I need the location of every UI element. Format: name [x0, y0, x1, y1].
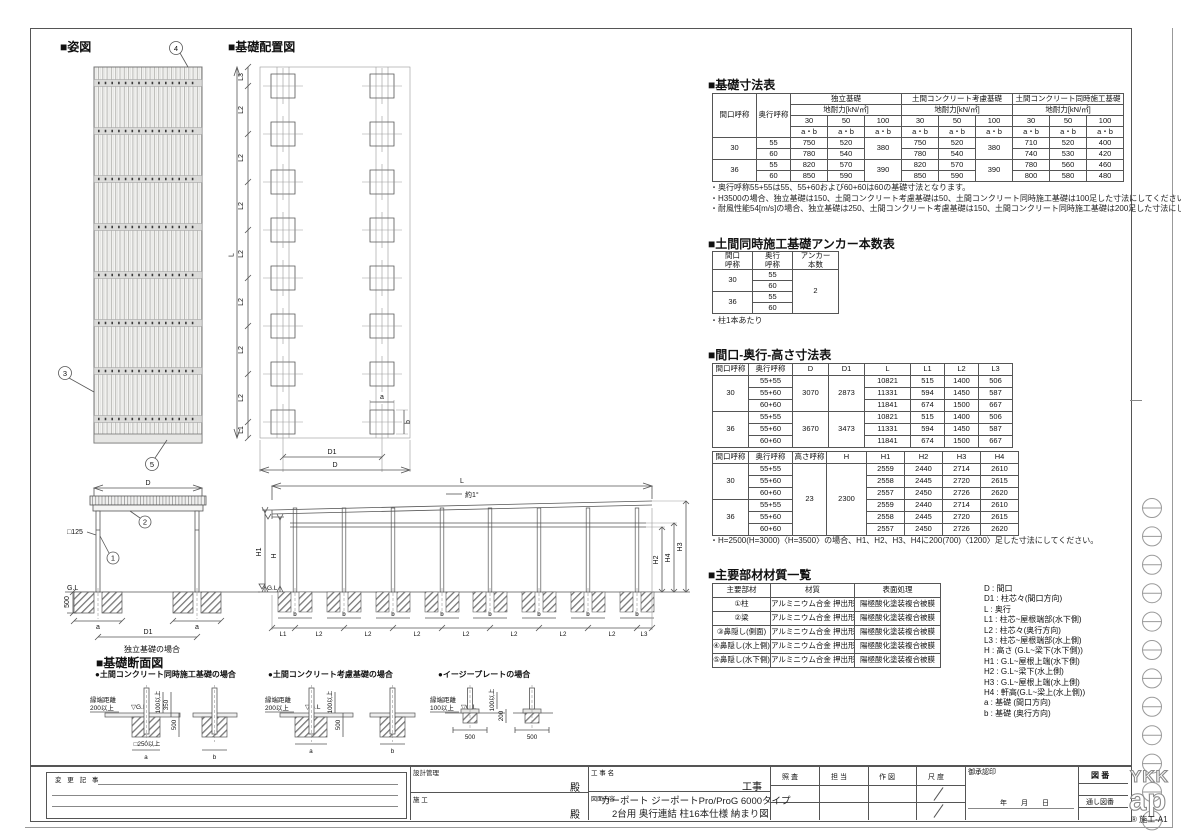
table-cell: 540 — [828, 149, 865, 160]
legend-line: H1 : G.L~屋根上端(水下側) — [984, 657, 1085, 667]
table-cell: 580 — [1050, 171, 1087, 182]
table-cell: 2557 — [867, 488, 905, 500]
header-dims-table: ■間口-奥行-高さ寸法表 — [708, 346, 831, 363]
section3-title: ●イージープレートの場合 — [438, 669, 530, 680]
legend-line: D : 間口 — [984, 584, 1085, 594]
table-cell: 2714 — [943, 500, 981, 512]
table-cell: 60 — [757, 171, 791, 182]
col-sakuzu: 作 図 — [879, 772, 895, 782]
table-cell: 23 — [793, 464, 827, 536]
label-post-size: □125 — [67, 529, 96, 536]
beam — [93, 505, 203, 511]
bottom-chain: L1 L2 L2 L2 L2 L2 L2 L2 L3 — [269, 508, 655, 638]
roof-panel — [94, 67, 202, 443]
table-cell: 2450 — [905, 524, 943, 536]
table-cell: 30 — [713, 376, 749, 412]
height-dims: H H1 H2 H4 H3 — [256, 501, 689, 592]
svg-text:H3: H3 — [677, 542, 684, 551]
table-cell: 515 — [911, 376, 945, 388]
svg-text:1: 1 — [111, 554, 115, 563]
svg-text:縁端距離: 縁端距離 — [430, 695, 457, 704]
tb-h-cols1 — [770, 785, 965, 786]
table-cell: 850 — [902, 171, 939, 182]
table-cell: 850 — [791, 171, 828, 182]
table-cell: 390 — [976, 160, 1013, 182]
table-cell: 60 — [757, 149, 791, 160]
tb-h-zuban3 — [1078, 807, 1128, 808]
table-cell: 2559 — [867, 464, 905, 476]
table-cell: 材質 — [771, 584, 855, 598]
change-record-label: 変 更 記 事 — [55, 774, 100, 784]
tb-h-cols2 — [770, 802, 965, 803]
table-cell: 陽極酸化塗装複合被膜 — [855, 654, 941, 668]
svg-text:a: a — [380, 394, 384, 401]
table-cell: 750 — [902, 138, 939, 149]
table-cell: 587 — [979, 388, 1013, 400]
table-cell: 陽極酸化塗装複合被膜 — [855, 612, 941, 626]
post-rails — [277, 67, 388, 438]
table-cell: 60+60 — [749, 400, 793, 412]
table-cell: H3 — [943, 452, 981, 464]
legend-line: a : 基礎 (間口方向) — [984, 698, 1085, 708]
table-cell: 380 — [865, 138, 902, 160]
table-cell: 780 — [791, 149, 828, 160]
table-cell: 2615 — [981, 512, 1019, 524]
table-cell: 100 — [865, 116, 902, 127]
front-elevation-drawing: D 2 1 □125 G.L 500 — [60, 478, 265, 668]
table-cell: 820 — [791, 160, 828, 171]
side-elevation-drawing: L 約1° G.L b b b b — [250, 470, 700, 665]
table-cell: L1 — [911, 364, 945, 376]
table-cell: 30 — [713, 138, 757, 160]
table-cell: 2620 — [981, 488, 1019, 500]
table-cell: 主要部材 — [713, 584, 771, 598]
table-cell: D1 — [829, 364, 865, 376]
footing-centerlines — [263, 68, 402, 440]
svg-text:H: H — [271, 553, 278, 558]
slope-label: 約1° — [446, 490, 479, 499]
foundation-dims-notes: ・奥行呼称55+55は55、55+60および60+60は60の基礎寸法となります… — [710, 183, 1181, 215]
table-cell: 奥行呼称 — [749, 452, 793, 464]
foundation-sections-drawing: 縁端距離 200以上 ▽G.L 100以上 350 500 □250以上 a b — [85, 680, 585, 765]
table-cell: 奥行呼称 — [749, 364, 793, 376]
table-cell: a・b — [865, 127, 902, 138]
table-cell: 820 — [902, 160, 939, 171]
drawing-title-line1: カーポート ジーポートPro/ProG 6000タイプ — [601, 793, 791, 807]
table-cell: 11841 — [865, 436, 911, 448]
legend-line: L3 : 柱芯~屋根端部(水上側) — [984, 636, 1085, 646]
table-cell: 60+60 — [749, 524, 793, 536]
table-cell: 間口呼称 — [713, 364, 749, 376]
table-cell: 800 — [1013, 171, 1050, 182]
svg-text:L2: L2 — [463, 631, 470, 638]
table-cell: 11331 — [865, 424, 911, 436]
table-cell: 400 — [1087, 138, 1124, 149]
ykk-logo-bottom: ap — [1129, 784, 1167, 815]
tb-h-zuban1 — [1078, 783, 1128, 784]
table-cell: 2726 — [943, 524, 981, 536]
svg-text:L2: L2 — [238, 394, 245, 402]
table-cell: 2615 — [981, 476, 1019, 488]
section2-title: ●土間コンクリート考慮基礎の場合 — [268, 669, 393, 680]
svg-text:L2: L2 — [238, 154, 245, 162]
design-label: 設計管理 — [413, 767, 439, 777]
table-cell: 11331 — [865, 388, 911, 400]
table-cell: a・b — [1013, 127, 1050, 138]
table-cell: 間口呼称 — [713, 94, 757, 138]
table-cell: 高さ呼称 — [793, 452, 827, 464]
appearance-drawing: 4 3 5 — [55, 40, 225, 475]
dim-L: L — [272, 478, 652, 500]
table-cell: 10821 — [865, 412, 911, 424]
table-cell: 55+55 — [749, 376, 793, 388]
dim-D: D — [94, 480, 202, 496]
table-cell: 陽極酸化塗装複合被膜 — [855, 626, 941, 640]
section1-title: ●土間コンクリート同時施工基礎の場合 — [95, 669, 236, 680]
svg-text:500: 500 — [527, 734, 538, 741]
svg-text:H2: H2 — [653, 555, 660, 564]
table-cell: 674 — [911, 400, 945, 412]
construction-label: 施 工 — [413, 794, 428, 804]
svg-text:H4: H4 — [665, 553, 672, 562]
foundation-layout-drawing: L3 L2 L2 L2 L2 L2 L2 L2 L1 L D1 D a — [230, 55, 435, 480]
table-cell: 奥行呼称 — [757, 94, 791, 138]
table-cell: 560 — [1050, 160, 1087, 171]
independent-footings — [74, 588, 221, 619]
table-cell: L2 — [945, 364, 979, 376]
table-cell: 100 — [976, 116, 1013, 127]
table-cell: 515 — [911, 412, 945, 424]
svg-text:500: 500 — [335, 719, 342, 730]
tb-div-6 — [916, 765, 917, 820]
table-cell: 11841 — [865, 400, 911, 412]
table-cell: 55+55 — [749, 500, 793, 512]
table-cell: a・b — [976, 127, 1013, 138]
table-cell: アルミニウム合金 押出形材 — [771, 598, 855, 612]
header-foundation-layout: ■基礎配置図 — [228, 38, 295, 55]
svg-text:L2: L2 — [238, 106, 245, 114]
posts — [293, 508, 639, 592]
callout-3: 3 — [59, 367, 95, 393]
svg-text:□250以上: □250以上 — [134, 740, 160, 748]
svg-text:4: 4 — [174, 44, 178, 53]
table-cell: 10821 — [865, 376, 911, 388]
table-cell: 36 — [713, 160, 757, 182]
table-cell: 55+60 — [749, 388, 793, 400]
svg-text:100以上: 100以上 — [488, 689, 496, 712]
svg-text:縁端距離: 縁端距離 — [90, 695, 117, 704]
table-cell: a・b — [1087, 127, 1124, 138]
svg-text:200以上: 200以上 — [265, 703, 289, 712]
table-cell: 60+60 — [749, 488, 793, 500]
svg-text:H1: H1 — [256, 547, 263, 556]
footings — [278, 588, 654, 618]
table-cell: ①柱 — [713, 598, 771, 612]
table-cell: 520 — [1050, 138, 1087, 149]
svg-text:D1: D1 — [328, 449, 337, 456]
table-cell: ②梁 — [713, 612, 771, 626]
table-cell: 地耐力[kN/㎡] — [791, 105, 902, 116]
table-cell: 2726 — [943, 488, 981, 500]
table-cell: 420 — [1087, 149, 1124, 160]
table-cell: 60+60 — [749, 436, 793, 448]
table-cell: 570 — [828, 160, 865, 171]
tb-div-8 — [1078, 765, 1079, 820]
svg-text:L: L — [229, 253, 236, 257]
dims-a-D1: a a D1 — [71, 618, 224, 640]
table-cell: a・b — [939, 127, 976, 138]
gl-mark: G.L — [259, 584, 278, 592]
col-shakudo: 尺 度 — [928, 772, 944, 782]
header-foundation-dims: ■基礎寸法表 — [708, 76, 775, 93]
svg-text:500: 500 — [64, 596, 71, 608]
table-cell: アルミニウム合金 押出形材 — [771, 654, 855, 668]
dims-table-b: 間口呼称奥行呼称高さ呼称HH1H2H3H43055+55232300255924… — [712, 451, 1019, 536]
table-cell: アルミニウム合金 押出形材 — [771, 626, 855, 640]
table-cell: 間口 呼称 — [713, 252, 753, 270]
table-cell: H4 — [981, 452, 1019, 464]
dimension-legend: D : 間口D1 : 柱芯々(間口方向)L : 奥行L1 : 柱芯~屋根端部(水… — [984, 584, 1085, 719]
table-cell: 55+55 — [749, 464, 793, 476]
svg-text:D: D — [332, 462, 337, 469]
svg-text:b: b — [537, 611, 541, 618]
tooshi-zuban-label: 通し図番 — [1086, 797, 1114, 807]
table-cell: 30 — [791, 116, 828, 127]
table-cell: 55+60 — [749, 424, 793, 436]
svg-text:100以上: 100以上 — [326, 691, 334, 714]
table-cell: ③鼻隠し(側面) — [713, 626, 771, 640]
svg-text:L2: L2 — [238, 298, 245, 306]
table-cell: 780 — [902, 149, 939, 160]
table-cell: 506 — [979, 376, 1013, 388]
table-cell: 1500 — [945, 400, 979, 412]
sheet-bottom-edge — [25, 827, 1173, 828]
table-cell: 2720 — [943, 512, 981, 524]
table-cell: 506 — [979, 412, 1013, 424]
svg-text:b: b — [293, 611, 297, 618]
svg-text:L3: L3 — [641, 631, 648, 638]
table-cell: 2 — [793, 270, 839, 314]
svg-text:L2: L2 — [414, 631, 421, 638]
table-cell: 2300 — [827, 464, 867, 536]
svg-text:100以上: 100以上 — [154, 691, 162, 714]
table-cell: a・b — [791, 127, 828, 138]
table-cell: 380 — [976, 138, 1013, 160]
svg-text:L2: L2 — [316, 631, 323, 638]
table-cell: 390 — [865, 160, 902, 182]
tb-div-4 — [819, 765, 820, 820]
svg-text:L2: L2 — [609, 631, 616, 638]
table-cell: 2445 — [905, 476, 943, 488]
svg-text:b: b — [440, 611, 444, 618]
svg-text:D: D — [145, 480, 150, 487]
legend-line: L : 奥行 — [984, 605, 1085, 615]
construction-dono: 殿 — [570, 806, 580, 821]
table-cell: 55 — [753, 270, 793, 281]
approval-underline — [968, 808, 1074, 809]
change-line-3 — [52, 806, 398, 807]
table-cell: 土間コンクリート同時施工基礎 — [1013, 94, 1124, 105]
svg-text:L: L — [460, 478, 464, 485]
svg-text:b: b — [342, 611, 346, 618]
table-cell: 2557 — [867, 524, 905, 536]
svg-text:a: a — [309, 748, 313, 755]
table-cell: 2610 — [981, 500, 1019, 512]
table-cell: 60 — [753, 303, 793, 314]
table-cell: 土間コンクリート考慮基礎 — [902, 94, 1013, 105]
legend-line: H3 : G.L~屋根上端(水上側) — [984, 678, 1085, 688]
left-dim-chain: L3 L2 L2 L2 L2 L2 L2 L2 L1 L — [229, 64, 252, 441]
svg-text:b: b — [488, 611, 492, 618]
table-cell: 30 — [902, 116, 939, 127]
svg-text:350: 350 — [163, 699, 170, 710]
callout-4: 4 — [170, 42, 189, 68]
table-cell: ⑤鼻隠し(水下側) — [713, 654, 771, 668]
drawing-sheet: ■姿図 ■基礎配置図 ■基礎寸法表 ■土間同時施工基礎アンカー本数表 ■間口-奥… — [0, 0, 1181, 835]
svg-text:2: 2 — [143, 518, 147, 527]
table-cell: 3670 — [793, 412, 829, 448]
approval-date: 年 月 日 — [1000, 798, 1049, 808]
table-cell: 陽極酸化塗装複合被膜 — [855, 598, 941, 612]
svg-text:b: b — [213, 754, 217, 761]
svg-text:b: b — [391, 611, 395, 618]
svg-text:500: 500 — [465, 734, 476, 741]
svg-text:a: a — [195, 624, 199, 631]
table-cell: 55 — [753, 292, 793, 303]
table-cell: 2720 — [943, 476, 981, 488]
table-cell: 陽極酸化塗装複合被膜 — [855, 640, 941, 654]
table-cell: 36 — [713, 500, 749, 536]
table-cell: 表面処理 — [855, 584, 941, 598]
legend-line: L1 : 柱芯~屋根端部(水下側) — [984, 615, 1085, 625]
dims-note: ・H=2500(H=3000)〈H=3500〉の場合、H1、H2、H3、H4に2… — [710, 536, 1098, 547]
foundation-dims-table: 間口呼称奥行呼称独立基礎土間コンクリート考慮基礎土間コンクリート同時施工基礎地耐… — [712, 93, 1124, 182]
svg-text:a: a — [96, 624, 100, 631]
table-cell: 2445 — [905, 512, 943, 524]
label-gl: G.L — [67, 585, 78, 592]
table-cell: 1450 — [945, 388, 979, 400]
table-cell: 1450 — [945, 424, 979, 436]
header-anchor-table: ■土間同時施工基礎アンカー本数表 — [708, 235, 895, 252]
svg-text:200: 200 — [498, 710, 505, 721]
table-cell: 1400 — [945, 412, 979, 424]
legend-line: b : 基礎 (奥行方向) — [984, 709, 1085, 719]
svg-text:b: b — [391, 748, 395, 755]
table-cell: 674 — [911, 436, 945, 448]
zuban-label: 図 番 — [1091, 770, 1109, 781]
table-cell: 2610 — [981, 464, 1019, 476]
sheet-code: ® 施工-A1 — [1131, 814, 1168, 825]
anchor-note: ・柱1本あたり — [710, 316, 762, 327]
table-cell: 570 — [939, 160, 976, 171]
project-name-label: 工 事 名 — [591, 767, 614, 777]
table-cell: L — [865, 364, 911, 376]
svg-text:L2: L2 — [365, 631, 372, 638]
table-cell: 2873 — [829, 376, 865, 412]
project-suffix: 工事 — [742, 778, 762, 793]
svg-text:L2: L2 — [238, 346, 245, 354]
sheet-right-edge — [1172, 28, 1173, 827]
svg-text:L2: L2 — [238, 202, 245, 210]
table-cell: 667 — [979, 436, 1013, 448]
table-cell: a・b — [1050, 127, 1087, 138]
table-cell: 50 — [939, 116, 976, 127]
table-cell: 36 — [713, 292, 753, 314]
svg-text:200以上: 200以上 — [90, 703, 114, 712]
svg-text:b: b — [635, 611, 639, 618]
table-cell: 1500 — [945, 436, 979, 448]
svg-text:100以上: 100以上 — [430, 703, 454, 712]
table-cell: 480 — [1087, 171, 1124, 182]
table-cell: アルミニウム合金 押出形材 — [771, 612, 855, 626]
table-cell: 2558 — [867, 512, 905, 524]
svg-text:3: 3 — [63, 369, 67, 378]
table-cell: 2559 — [867, 500, 905, 512]
table-cell: 独立基礎 — [791, 94, 902, 105]
callout-2: 2 — [130, 511, 151, 528]
roof-slope — [265, 501, 652, 519]
legend-line: H4 : 軒高(G.L~梁上(水上側)) — [984, 688, 1085, 698]
svg-text:L2: L2 — [511, 631, 518, 638]
table-cell: 50 — [828, 116, 865, 127]
svg-text:b: b — [586, 611, 590, 618]
legend-line: H2 : G.L~梁下(水上側) — [984, 667, 1085, 677]
table-cell: H — [827, 452, 867, 464]
svg-text:縁端距離: 縁端距離 — [265, 695, 292, 704]
table-cell: 2620 — [981, 524, 1019, 536]
svg-text:G.L: G.L — [267, 585, 278, 592]
table-cell: L3 — [979, 364, 1013, 376]
approval-label: 御承認印 — [968, 767, 996, 777]
callout-1: 1 — [100, 536, 119, 564]
section-doma-simultaneous: 縁端距離 200以上 ▽G.L 100以上 350 500 □250以上 a b — [90, 685, 237, 761]
caption-independent: 独立基礎の場合 — [124, 644, 180, 654]
drawing-title-line2: 2台用 奥行連結 柱16本仕様 納まり図 — [612, 806, 769, 820]
col-shousa: 照 査 — [782, 772, 798, 782]
table-cell: ④鼻隠し(水上側) — [713, 640, 771, 654]
table-cell: 460 — [1087, 160, 1124, 171]
svg-text:L2: L2 — [238, 250, 245, 258]
anchor-count-table: 間口 呼称奥行 呼称アンカー 本数3055260365560 — [712, 251, 839, 314]
table-cell: 55+60 — [749, 476, 793, 488]
table-cell: 530 — [1050, 149, 1087, 160]
table-cell: 590 — [828, 171, 865, 182]
table-cell: 520 — [939, 138, 976, 149]
tb-h-zuban2 — [1078, 795, 1128, 796]
table-cell: 100 — [1087, 116, 1124, 127]
table-cell: 750 — [791, 138, 828, 149]
section-doma-considered: 縁端距離 200以上 ▽G.L 100以上 500 a b — [265, 685, 415, 755]
change-line-2 — [52, 795, 398, 796]
table-cell: 間口呼称 — [713, 452, 749, 464]
legend-line: L2 : 柱芯々(奥行方向) — [984, 626, 1085, 636]
change-line-1 — [98, 784, 398, 785]
table-cell: 30 — [713, 464, 749, 500]
dims-table-a: 間口呼称奥行呼称DD1LL1L2L33055+55307028731082151… — [712, 363, 1013, 448]
svg-text:a: a — [144, 754, 148, 761]
posts — [96, 511, 199, 592]
table-cell: 590 — [939, 171, 976, 182]
table-cell: 地耐力[kN/㎡] — [1013, 105, 1124, 116]
col-tantou: 担 当 — [831, 772, 847, 782]
svg-text:500: 500 — [171, 719, 178, 730]
table-cell: アルミニウム合金 押出形材 — [771, 640, 855, 654]
tb-div-5 — [868, 765, 869, 820]
table-cell: 2440 — [905, 464, 943, 476]
table-cell: H1 — [867, 452, 905, 464]
table-cell: アンカー 本数 — [793, 252, 839, 270]
bottom-dims: D1 D — [260, 440, 410, 473]
